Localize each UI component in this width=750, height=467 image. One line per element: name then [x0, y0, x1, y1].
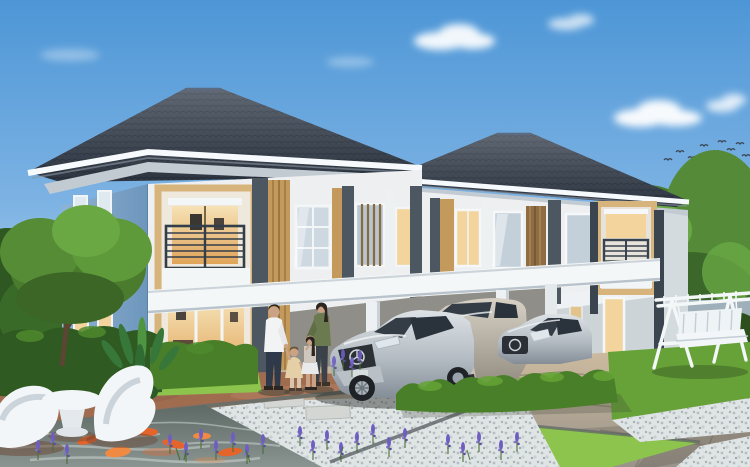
swing-shadow — [652, 365, 748, 379]
bay-pelmet — [168, 198, 242, 205]
sedan-right-grille — [502, 336, 528, 354]
right-window-glass — [491, 212, 525, 272]
window-six-pane — [294, 206, 330, 268]
daughter-skirt — [301, 362, 319, 374]
right-window-lit — [456, 210, 480, 266]
right-slat-screen — [526, 206, 546, 270]
right-window-glass-2 — [566, 214, 592, 268]
father-head — [269, 307, 280, 318]
scene-canvas — [0, 0, 750, 467]
window-slatted — [356, 204, 384, 266]
wall-art — [190, 214, 202, 230]
right-entry-door — [604, 298, 624, 354]
architectural-render — [0, 0, 750, 467]
